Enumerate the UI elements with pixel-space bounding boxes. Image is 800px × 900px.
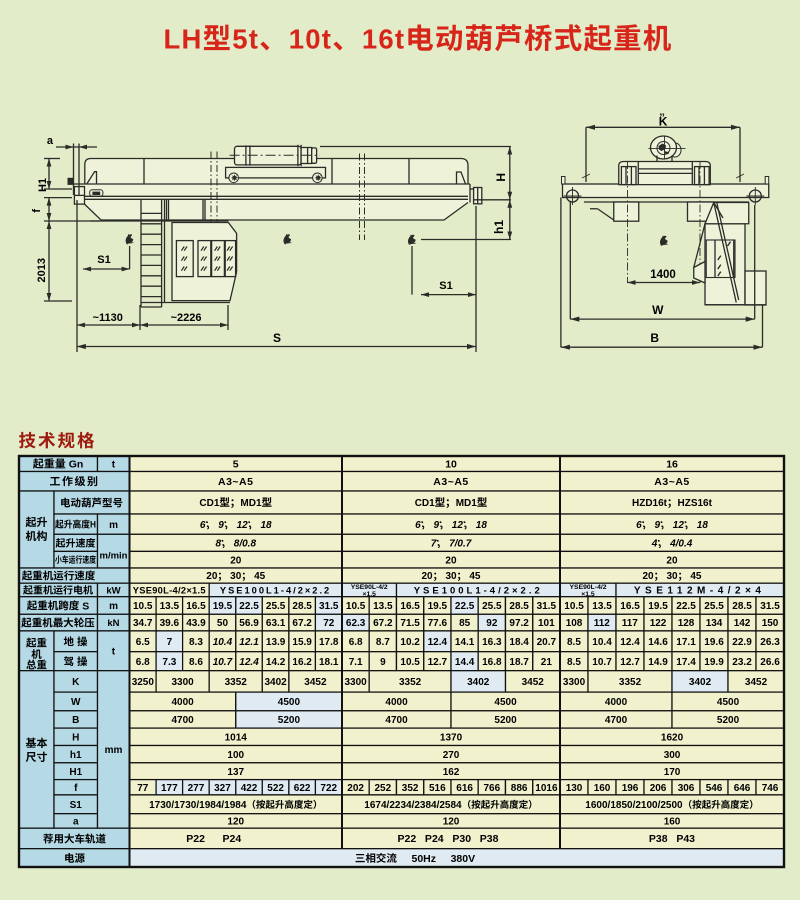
svg-text:kW: kW: [106, 585, 120, 596]
svg-text:4/0.4: 4/0.4: [667, 538, 692, 549]
svg-text:137: 137: [227, 767, 244, 778]
svg-text:3452: 3452: [745, 677, 768, 688]
svg-text:160: 160: [664, 817, 681, 828]
svg-text:h1: h1: [492, 220, 506, 234]
svg-text:3250: 3250: [132, 677, 155, 688]
svg-text:6: 6: [636, 520, 642, 531]
svg-text:45: 45: [251, 571, 265, 582]
svg-text:306: 306: [678, 783, 695, 794]
svg-text:3402: 3402: [265, 677, 288, 688]
svg-text:Gn: Gn: [66, 459, 84, 471]
svg-text:31.5: 31.5: [537, 601, 557, 612]
svg-text:19.6: 19.6: [704, 637, 724, 648]
svg-text:W: W: [71, 697, 81, 708]
svg-text:P22 P24: P22 P24: [186, 833, 241, 845]
svg-text:P38 P43: P38 P43: [649, 833, 695, 845]
svg-text:92: 92: [486, 618, 498, 629]
svg-text:28.5: 28.5: [292, 601, 312, 612]
svg-text:17.4: 17.4: [676, 657, 696, 668]
svg-text:30: 30: [227, 571, 241, 582]
svg-text:160: 160: [594, 783, 611, 794]
svg-text:8: 8: [216, 538, 222, 549]
svg-text:16: 16: [666, 459, 678, 471]
svg-text:mm: mm: [105, 745, 123, 756]
svg-text:26.6: 26.6: [760, 657, 780, 668]
svg-text:300: 300: [664, 750, 681, 761]
svg-text:16.5: 16.5: [400, 601, 420, 612]
svg-text:196: 196: [622, 783, 639, 794]
svg-text:S: S: [79, 600, 89, 612]
svg-text:112: 112: [594, 618, 611, 629]
svg-text:14.6: 14.6: [648, 637, 668, 648]
svg-text:97.2: 97.2: [509, 618, 529, 629]
svg-text:m/min: m/min: [100, 551, 128, 562]
svg-text:1400: 1400: [650, 269, 676, 281]
svg-text:1600/1850/2100/2500: 1600/1850/2100/2500: [585, 800, 683, 811]
svg-text:H: H: [90, 519, 96, 529]
svg-text:128: 128: [678, 618, 695, 629]
svg-text:~2226: ~2226: [171, 312, 202, 324]
svg-text:10.5: 10.5: [346, 601, 366, 612]
svg-text:277: 277: [188, 783, 205, 794]
svg-text:20: 20: [206, 571, 218, 582]
svg-text:H: H: [72, 732, 79, 743]
svg-text:13.5: 13.5: [373, 601, 393, 612]
svg-text:18: 18: [473, 520, 487, 531]
svg-text:A3~A5: A3~A5: [654, 476, 689, 488]
svg-text:12.1: 12.1: [239, 637, 259, 648]
svg-text:63.1: 63.1: [266, 618, 286, 629]
svg-text:4000: 4000: [605, 697, 628, 708]
svg-text:LH: LH: [164, 24, 203, 55]
svg-text:3300: 3300: [345, 677, 368, 688]
svg-text:K: K: [72, 677, 80, 688]
svg-text:12: 12: [670, 520, 684, 531]
svg-text:8.5: 8.5: [567, 657, 581, 668]
svg-text:202: 202: [347, 783, 364, 794]
svg-text:12.4: 12.4: [620, 637, 640, 648]
svg-text:101: 101: [538, 618, 555, 629]
svg-text:3452: 3452: [304, 677, 327, 688]
svg-text:16t: 16t: [362, 24, 405, 55]
svg-text:28.5: 28.5: [509, 601, 529, 612]
svg-text:H1: H1: [37, 178, 49, 192]
svg-text:516: 516: [429, 783, 446, 794]
svg-text:22.5: 22.5: [455, 601, 475, 612]
svg-text:30: 30: [664, 571, 678, 582]
svg-text:3300: 3300: [172, 677, 195, 688]
svg-text:31.5: 31.5: [760, 601, 780, 612]
svg-text:3402: 3402: [467, 677, 490, 688]
svg-text:K: K: [659, 115, 668, 129]
svg-text:7.1: 7.1: [349, 657, 363, 668]
svg-text:S1: S1: [97, 254, 110, 266]
svg-text:W: W: [652, 303, 664, 317]
svg-text:20: 20: [666, 555, 678, 566]
svg-text:22.5: 22.5: [676, 601, 696, 612]
svg-text:YSE90L-4/2: YSE90L-4/2: [351, 584, 388, 591]
svg-text:8.5: 8.5: [567, 637, 581, 648]
svg-text:6.5: 6.5: [136, 637, 150, 648]
svg-text:5t: 5t: [232, 24, 259, 55]
svg-text:150: 150: [762, 618, 779, 629]
svg-text:1370: 1370: [440, 732, 463, 743]
svg-text:YSE112M-4/2×4: YSE112M-4/2×4: [634, 586, 766, 597]
svg-text:56.9: 56.9: [239, 618, 259, 629]
svg-text:1730/1730/1984/1984: 1730/1730/1984/1984: [149, 800, 247, 811]
svg-text:H: H: [494, 173, 508, 182]
svg-text:177: 177: [161, 783, 178, 794]
svg-text:20.7: 20.7: [537, 637, 557, 648]
svg-text:20: 20: [643, 571, 655, 582]
svg-text:6: 6: [415, 520, 421, 531]
svg-text:1620: 1620: [661, 732, 684, 743]
svg-text:10.4: 10.4: [592, 637, 612, 648]
svg-text:13.9: 13.9: [266, 637, 286, 648]
svg-text:31.5: 31.5: [319, 601, 339, 612]
svg-text:25.5: 25.5: [482, 601, 502, 612]
svg-text:10.7: 10.7: [592, 657, 612, 668]
svg-text:142: 142: [734, 618, 751, 629]
svg-text:10.5: 10.5: [133, 601, 153, 612]
svg-text:10.5: 10.5: [564, 601, 584, 612]
svg-text:9: 9: [652, 520, 661, 531]
svg-text:CD1: CD1: [415, 498, 435, 509]
svg-text:122: 122: [650, 618, 667, 629]
svg-text:130: 130: [566, 783, 583, 794]
svg-text:HZD16t: HZD16t: [632, 498, 668, 509]
svg-text:5200: 5200: [494, 715, 517, 726]
svg-text:12: 12: [449, 520, 463, 531]
svg-text:1016: 1016: [535, 783, 558, 794]
svg-text:9: 9: [216, 520, 225, 531]
svg-text:21: 21: [541, 657, 553, 668]
svg-text:YSE90L-4/2×1.5: YSE90L-4/2×1.5: [133, 585, 206, 595]
svg-text:14.9: 14.9: [648, 657, 668, 668]
svg-text:6.8: 6.8: [349, 637, 363, 648]
svg-text:4500: 4500: [278, 697, 301, 708]
svg-text:3352: 3352: [225, 677, 248, 688]
svg-text:19.5: 19.5: [213, 601, 233, 612]
svg-text:30: 30: [443, 571, 457, 582]
svg-text:12.7: 12.7: [620, 657, 640, 668]
svg-text:4700: 4700: [385, 715, 408, 726]
svg-text:6: 6: [200, 520, 206, 531]
svg-text:13.5: 13.5: [160, 601, 180, 612]
svg-text:162: 162: [443, 767, 460, 778]
svg-text:16.5: 16.5: [186, 601, 206, 612]
svg-text:kN: kN: [107, 618, 119, 629]
svg-text:546: 546: [706, 783, 723, 794]
svg-text:10.4: 10.4: [213, 637, 233, 648]
svg-text:16.3: 16.3: [482, 637, 502, 648]
svg-text:19.5: 19.5: [428, 601, 448, 612]
svg-text:12.4: 12.4: [239, 657, 259, 668]
svg-text:722: 722: [320, 783, 337, 794]
svg-text:170: 170: [664, 767, 681, 778]
svg-text:20: 20: [422, 571, 434, 582]
svg-text:12: 12: [234, 520, 248, 531]
svg-text:616: 616: [456, 783, 473, 794]
svg-text:62.3: 62.3: [346, 618, 366, 629]
svg-text:18.1: 18.1: [319, 657, 339, 668]
svg-text:50: 50: [217, 618, 229, 629]
svg-text:8.7: 8.7: [376, 637, 390, 648]
svg-text:~1130: ~1130: [93, 312, 123, 324]
svg-text:6.8: 6.8: [136, 657, 150, 668]
svg-text:3452: 3452: [522, 677, 545, 688]
svg-text:45: 45: [688, 571, 702, 582]
svg-text:20: 20: [445, 555, 457, 566]
svg-text:8.3: 8.3: [189, 637, 203, 648]
svg-text:MD1: MD1: [456, 498, 478, 509]
svg-text:a: a: [73, 817, 79, 828]
svg-text:206: 206: [650, 783, 667, 794]
svg-text:72: 72: [323, 618, 335, 629]
svg-text:19.5: 19.5: [648, 601, 668, 612]
svg-text:4000: 4000: [385, 697, 408, 708]
svg-text:7/0.7: 7/0.7: [446, 538, 471, 549]
svg-text:S: S: [273, 331, 281, 345]
svg-text:45: 45: [467, 571, 481, 582]
svg-text:YSE100L1-4/2×2.2: YSE100L1-4/2×2.2: [414, 585, 543, 596]
svg-text:f: f: [31, 209, 43, 213]
svg-text:22.9: 22.9: [732, 637, 752, 648]
svg-text:4: 4: [651, 538, 658, 549]
svg-text:13.5: 13.5: [592, 601, 612, 612]
svg-text:S1: S1: [70, 800, 83, 811]
svg-text:4500: 4500: [717, 697, 740, 708]
svg-text:18: 18: [258, 520, 272, 531]
svg-text:B: B: [72, 715, 79, 726]
svg-text:1014: 1014: [225, 732, 248, 743]
svg-text:10.2: 10.2: [400, 637, 420, 648]
svg-text:252: 252: [375, 783, 392, 794]
svg-text:67.2: 67.2: [292, 618, 312, 629]
svg-text:B: B: [650, 331, 659, 345]
svg-text:422: 422: [241, 783, 258, 794]
svg-text:16.8: 16.8: [482, 657, 502, 668]
svg-text:16.5: 16.5: [620, 601, 640, 612]
svg-text:100: 100: [227, 750, 244, 761]
svg-text:9: 9: [431, 520, 440, 531]
svg-text:S1: S1: [439, 280, 452, 292]
svg-text:85: 85: [459, 618, 471, 629]
svg-text:4000: 4000: [172, 697, 195, 708]
svg-text:327: 327: [214, 783, 231, 794]
svg-text:77.6: 77.6: [428, 618, 448, 629]
svg-text:7: 7: [167, 637, 173, 648]
svg-text:270: 270: [443, 750, 460, 761]
svg-text:7.3: 7.3: [162, 657, 176, 668]
svg-text:43.9: 43.9: [186, 618, 206, 629]
svg-text:10: 10: [445, 459, 457, 471]
svg-text:23.2: 23.2: [732, 657, 752, 668]
svg-text:8.6: 8.6: [189, 657, 203, 668]
svg-text:18: 18: [694, 520, 708, 531]
svg-text:3352: 3352: [619, 677, 642, 688]
svg-text:3352: 3352: [399, 677, 422, 688]
svg-text:m: m: [109, 520, 118, 531]
svg-text:26.3: 26.3: [760, 637, 780, 648]
svg-text:H1: H1: [69, 767, 82, 778]
svg-text:39.6: 39.6: [160, 618, 180, 629]
svg-text:10.5: 10.5: [400, 657, 420, 668]
svg-text:3300: 3300: [563, 677, 586, 688]
svg-text:67.2: 67.2: [373, 618, 393, 629]
svg-text:746: 746: [762, 783, 779, 794]
svg-text:YSE90L-4/2: YSE90L-4/2: [570, 584, 607, 591]
svg-text:28.5: 28.5: [732, 601, 752, 612]
svg-text:14.1: 14.1: [455, 637, 475, 648]
svg-text:4500: 4500: [494, 697, 517, 708]
svg-text:50Hz 380V: 50Hz 380V: [397, 853, 475, 865]
svg-text:18.7: 18.7: [509, 657, 529, 668]
svg-text:A3~A5: A3~A5: [433, 476, 468, 488]
svg-text:10.7: 10.7: [213, 657, 233, 668]
svg-text:20: 20: [230, 555, 242, 566]
svg-text:5200: 5200: [717, 715, 740, 726]
svg-text:4700: 4700: [605, 715, 628, 726]
svg-text:17.8: 17.8: [319, 637, 339, 648]
svg-text:m: m: [109, 601, 118, 612]
svg-text:766: 766: [484, 783, 501, 794]
svg-text:10t: 10t: [289, 24, 332, 55]
svg-text:120: 120: [227, 817, 244, 828]
svg-text:a: a: [47, 135, 54, 147]
svg-text:134: 134: [706, 618, 723, 629]
svg-text:YSE100L1-4/2×2.2: YSE100L1-4/2×2.2: [220, 585, 331, 595]
svg-text:5200: 5200: [278, 715, 301, 726]
svg-text:CD1: CD1: [199, 498, 219, 509]
svg-text:120: 120: [443, 817, 460, 828]
svg-text:12.4: 12.4: [428, 637, 448, 648]
svg-text:34.7: 34.7: [133, 618, 153, 629]
svg-text:117: 117: [622, 618, 639, 629]
svg-text:25.5: 25.5: [704, 601, 724, 612]
svg-text:25.5: 25.5: [266, 601, 286, 612]
svg-text:9: 9: [380, 657, 386, 668]
svg-text:18.4: 18.4: [509, 637, 529, 648]
svg-text:MD1: MD1: [240, 498, 262, 509]
svg-text:8/0.8: 8/0.8: [231, 538, 256, 549]
svg-text:71.5: 71.5: [400, 618, 420, 629]
svg-text:HZS16t: HZS16t: [678, 498, 713, 509]
svg-text:5: 5: [233, 459, 239, 471]
svg-text:352: 352: [402, 783, 419, 794]
svg-text:886: 886: [511, 783, 528, 794]
svg-text:7: 7: [431, 538, 437, 549]
svg-text:622: 622: [294, 783, 311, 794]
svg-text:17.1: 17.1: [676, 637, 696, 648]
svg-text:P22 P24 P30 P38: P22 P24 P30 P38: [398, 833, 499, 845]
svg-text:14.2: 14.2: [266, 657, 286, 668]
svg-text:77: 77: [137, 783, 149, 794]
svg-text:A3~A5: A3~A5: [218, 476, 253, 488]
svg-text:16.2: 16.2: [292, 657, 312, 668]
svg-text:12.7: 12.7: [428, 657, 448, 668]
svg-text:19.9: 19.9: [704, 657, 724, 668]
svg-text:4700: 4700: [172, 715, 195, 726]
svg-text:646: 646: [734, 783, 751, 794]
svg-text:3402: 3402: [689, 677, 712, 688]
svg-text:22.5: 22.5: [239, 601, 259, 612]
svg-text:522: 522: [267, 783, 284, 794]
svg-text:108: 108: [566, 618, 583, 629]
svg-text:2013: 2013: [36, 258, 48, 282]
svg-text:h1: h1: [70, 750, 82, 761]
svg-text:15.9: 15.9: [292, 637, 312, 648]
svg-text:1674/2234/2384/2584: 1674/2234/2384/2584: [364, 800, 462, 811]
svg-text:14.4: 14.4: [455, 657, 475, 668]
